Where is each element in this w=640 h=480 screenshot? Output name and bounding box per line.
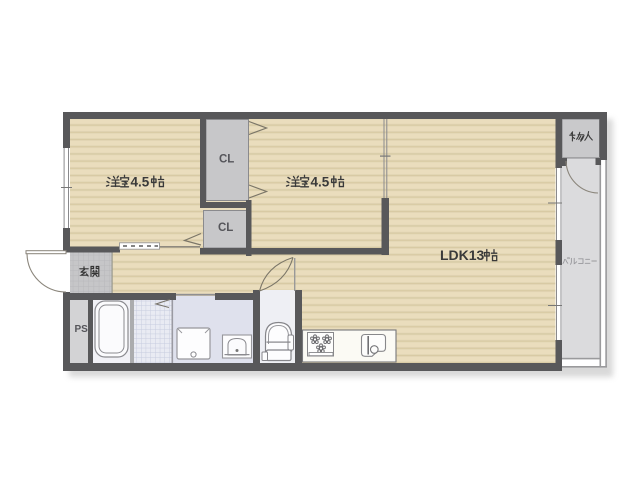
- svg-text:CL: CL: [219, 154, 234, 166]
- svg-text:PS: PS: [75, 324, 89, 335]
- svg-text:4.5: 4.5: [131, 175, 150, 190]
- svg-text:4.5: 4.5: [311, 175, 330, 190]
- svg-text:CL: CL: [218, 222, 233, 234]
- svg-text:LDK13: LDK13: [440, 247, 485, 263]
